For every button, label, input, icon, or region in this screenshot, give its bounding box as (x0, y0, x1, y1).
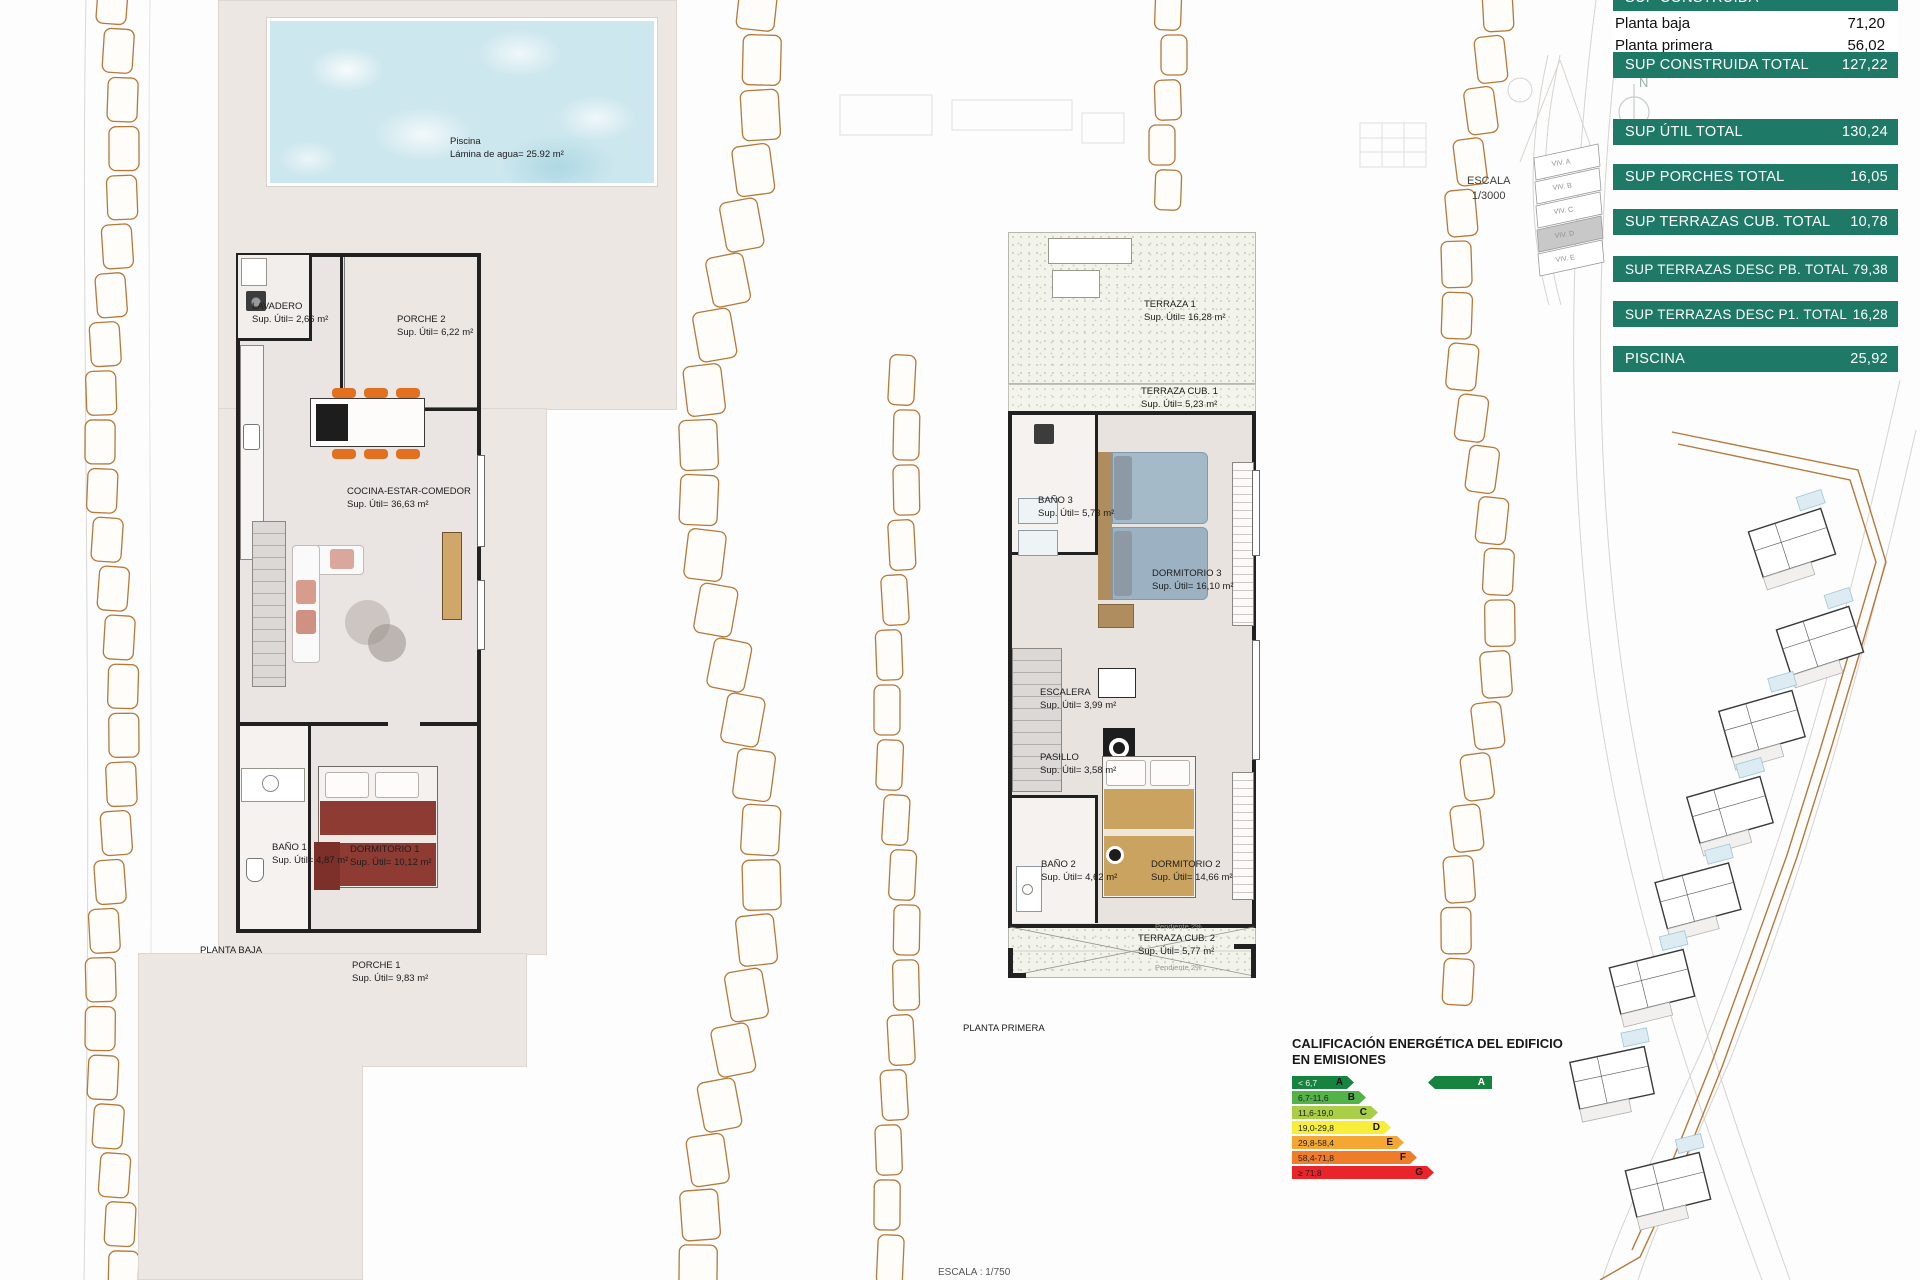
door-opening (388, 720, 418, 728)
stool (396, 449, 420, 459)
sun-lounger (1048, 238, 1132, 264)
stool (332, 449, 356, 459)
wardrobe (1232, 772, 1254, 900)
basin (1022, 884, 1033, 895)
sofa-chaise (292, 545, 320, 663)
cooktop (316, 404, 348, 441)
stool (332, 388, 356, 398)
site-scale-label: ESCALA1/3000 (1467, 174, 1510, 203)
room-label-piscina: Piscina Lámina de agua= 25.92 m² (450, 136, 564, 161)
energy-band-c: 11,6-19,0C (1292, 1106, 1378, 1119)
energy-band-f: 58,4-71,8F (1292, 1151, 1417, 1164)
laundry-sink (241, 258, 267, 286)
table-row-sup-terrazas-desc-pb-total: SUP TERRAZAS DESC PB. TOTAL79,38 (1613, 256, 1898, 282)
room-label-pasillo: PASILLOSup. Útil= 3,58 m² (1040, 752, 1116, 777)
room-label-bano3: BAÑO 3Sup. Útil= 5,73 m² (1038, 495, 1114, 520)
energy-band-d: 19,0-29,8D (1292, 1121, 1391, 1134)
slope-note-top: Pendiente 2% (1155, 922, 1202, 931)
window (477, 455, 485, 547)
pillow (1114, 456, 1132, 520)
window (1252, 470, 1260, 556)
table-row-sup-terrazas-cub-total: SUP TERRAZAS CUB. TOTAL10,78 (1613, 209, 1898, 235)
room-label-dormitorio1: DORMITORIO 1Sup. Útil= 10,12 m² (350, 844, 432, 869)
stool (396, 388, 420, 398)
energy-rating-indicator: A (1428, 1076, 1492, 1089)
room-label-lavadero: LAVADEROSup. Útil= 2,66 m² (252, 301, 328, 326)
room-label-porche1: PORCHE 1Sup. Útil= 9,83 m² (352, 960, 428, 985)
energy-band-g: ≥ 71,8G (1292, 1166, 1434, 1179)
slope-note-bottom: Pendiente 2% (1155, 963, 1202, 972)
stool (364, 388, 388, 398)
bath3-sink-unit (1018, 530, 1058, 556)
sideboard (442, 532, 462, 620)
terrace-plate-bottom-left (138, 1065, 363, 1280)
bath1-room (240, 726, 308, 929)
room-label-cocina: COCINA-ESTAR-COMEDORSup. Útil= 36,63 m² (347, 486, 471, 511)
room-label-bano2: BAÑO 2Sup. Útil= 4,62 m² (1041, 859, 1117, 884)
toilet (246, 858, 264, 882)
table-row-sup-porches-total: SUP PORCHES TOTAL16,05 (1613, 164, 1898, 190)
kitchen-sink (243, 424, 260, 450)
basin (262, 775, 279, 792)
wardrobe (1232, 462, 1254, 626)
room-label-dormitorio3: DORMITORIO 3Sup. Útil= 16,10 m² (1152, 568, 1234, 593)
table-row-sup-terrazas-desc-p1-total: SUP TERRAZAS DESC P1. TOTAL16,28 (1613, 301, 1898, 327)
window (477, 580, 485, 650)
sun-lounger (1052, 270, 1100, 298)
terraza-cub1-area (1008, 384, 1256, 413)
room-label-porche2: PORCHE 2Sup. Útil= 6,22 m² (397, 314, 473, 339)
table-row-sup-construida-total: SUP CONSTRUIDA TOTAL127,22 (1613, 52, 1898, 78)
room-label-dormitorio2: DORMITORIO 2Sup. Útil= 14,66 m² (1151, 859, 1233, 884)
pillow (325, 772, 369, 798)
pillow (375, 772, 419, 798)
table-row-sup-util-total: SUP ÚTIL TOTAL130,24 (1613, 119, 1898, 145)
window (1252, 640, 1260, 760)
room-label-terraza-cub1: TERRAZA CUB. 1Sup. Útil= 5,23 m² (1141, 386, 1218, 411)
sofa-cushion (330, 549, 354, 569)
bed3-headboard (1098, 452, 1112, 600)
table-row-piscina: PISCINA25,92 (1613, 346, 1898, 372)
table-row-planta-baja: Planta baja71,20 (1613, 12, 1898, 34)
energy-band-b: 6,7-11,6B (1292, 1091, 1366, 1104)
bed3-bench (1098, 604, 1134, 628)
terrace-plate-bottom (138, 953, 527, 1067)
room-label-terraza1: TERRAZA 1Sup. Útil= 16,28 m² (1144, 299, 1226, 324)
table-header-sup-construida: SUP CONSTRUIDA (1613, 0, 1898, 11)
floor-title-planta-baja: PLANTA BAJA (200, 945, 262, 958)
room-label-escalera: ESCALERASup. Útil= 3,99 m² (1040, 687, 1116, 712)
room-label-bano1: BAÑO 1Sup. Útil= 4,87 m² (272, 842, 348, 867)
pillow (1114, 531, 1132, 596)
terraza-cub2-slope-lines (1008, 925, 1256, 978)
sofa-cushion (296, 610, 316, 634)
floor-title-planta-primera: PLANTA PRIMERA (963, 1023, 1045, 1036)
sofa-cushion (296, 580, 316, 604)
energy-band-e: 29,8-58,4E (1292, 1136, 1404, 1149)
energy-scale: < 6,7A 6,7-11,6B 11,6-19,0C 19,0-29,8D 2… (1292, 1076, 1434, 1181)
energy-title: CALIFICACIÓN ENERGÉTICA DEL EDIFICIO EN … (1292, 1036, 1563, 1067)
staircase-ground (252, 521, 286, 687)
stool (364, 449, 388, 459)
energy-band-a: < 6,7A (1292, 1076, 1354, 1089)
room-label-terraza-cub2: TERRAZA CUB. 2Sup. Útil= 5,77 m² (1138, 933, 1215, 958)
round-rug (368, 624, 406, 662)
architectural-sheet: VIV. A VIV. B VIV. C VIV. D VIV. E Pisci… (0, 0, 1920, 1280)
site-buildings (1566, 489, 1873, 1230)
bottom-scale-label: ESCALA : 1/750 (938, 1266, 1010, 1279)
pillow (1150, 760, 1190, 786)
washer-icon (1034, 424, 1054, 444)
